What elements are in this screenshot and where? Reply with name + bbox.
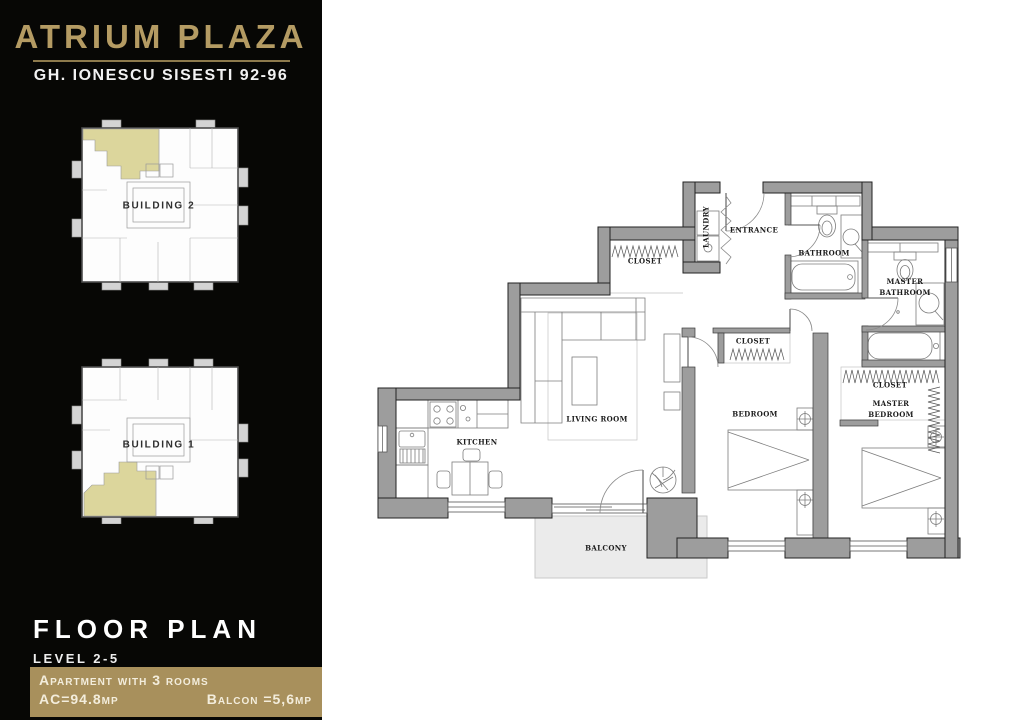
furniture-kitchen <box>396 400 508 498</box>
label-entrance: ENTRANCE <box>730 226 778 237</box>
label-bedroom-closet: CLOSET <box>736 337 770 348</box>
label-living-room: LIVING ROOM <box>566 415 627 426</box>
label-master-bathroom: MASTER BATHROOM <box>878 277 932 299</box>
label-bathroom: BATHROOM <box>798 249 849 260</box>
label-bedroom: BEDROOM <box>732 410 778 421</box>
plant-icon <box>650 467 676 493</box>
doors <box>600 193 898 513</box>
furniture-master-bathroom <box>865 243 944 362</box>
floor-plan-drawing <box>0 0 1018 720</box>
label-hall-closet: CLOSET <box>628 257 662 268</box>
label-master-bedroom: MASTER BEDROOM <box>864 399 918 421</box>
furniture-living-room <box>521 298 680 423</box>
furniture-master-bedroom <box>862 426 945 534</box>
furniture-bedroom <box>728 408 813 535</box>
label-master-closet: CLOSET <box>873 381 907 392</box>
label-balcony: BALCONY <box>585 544 627 555</box>
poster: ATRIUM PLAZA GH. IONESCU SISESTI 92-96 B… <box>0 0 1018 720</box>
label-kitchen: KITCHEN <box>457 438 498 449</box>
balcony-sliding-door <box>552 504 647 513</box>
furniture-bathroom <box>789 196 862 293</box>
label-laundry: LAUNDRY <box>702 206 713 248</box>
